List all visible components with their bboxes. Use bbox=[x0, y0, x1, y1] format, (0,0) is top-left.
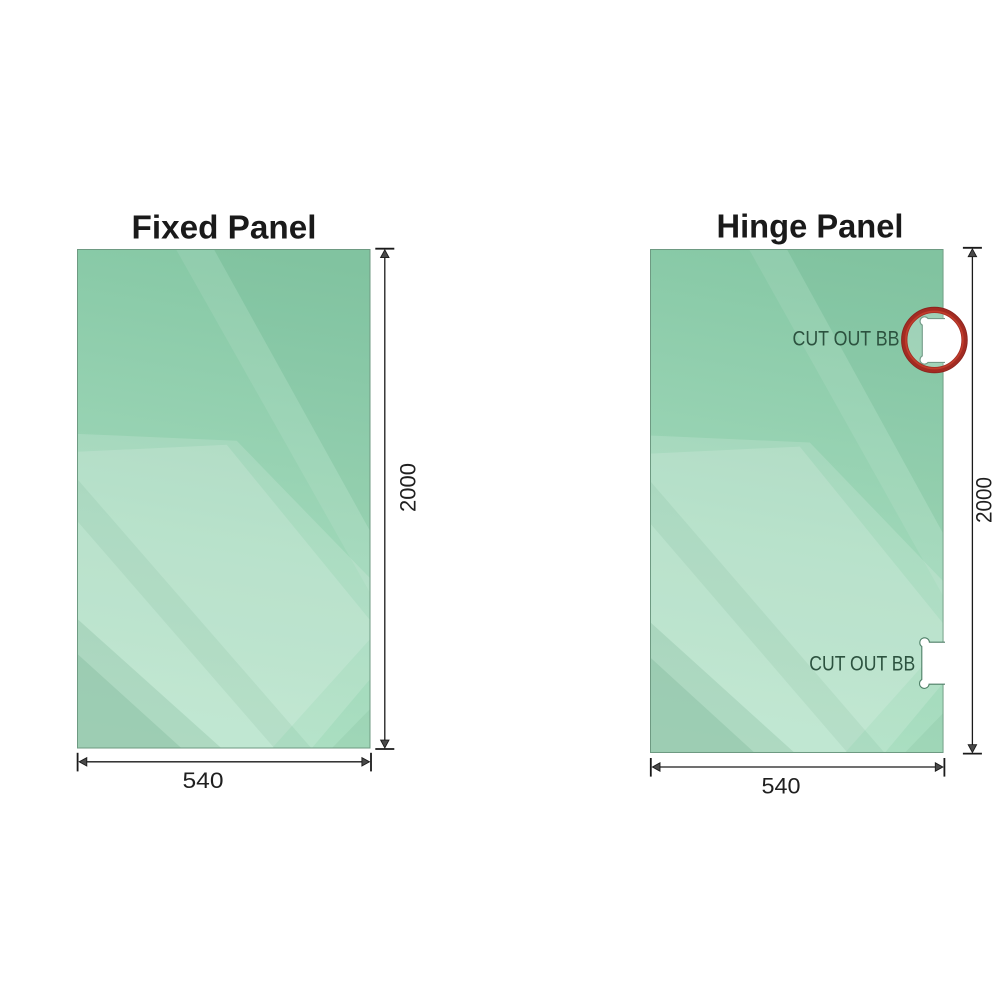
svg-text:Hinge Panel: Hinge Panel bbox=[717, 208, 904, 245]
svg-text:CUT OUT BB: CUT OUT BB bbox=[809, 652, 915, 676]
svg-text:2000: 2000 bbox=[395, 463, 420, 512]
svg-text:2000: 2000 bbox=[972, 477, 997, 523]
svg-text:Fixed Panel: Fixed Panel bbox=[132, 209, 317, 246]
svg-text:540: 540 bbox=[762, 774, 801, 799]
svg-text:540: 540 bbox=[183, 768, 224, 793]
svg-text:CUT OUT BB: CUT OUT BB bbox=[793, 327, 900, 351]
